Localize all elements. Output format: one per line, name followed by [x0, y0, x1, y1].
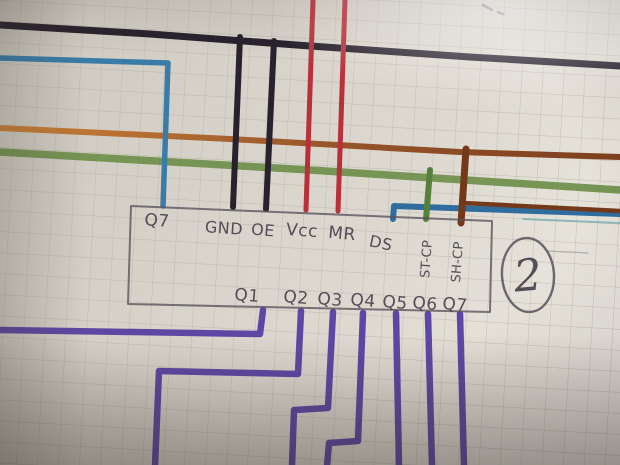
wire-st-cp-green	[426, 170, 430, 219]
wire-sh-cp-brown	[461, 149, 466, 223]
diagram-drawing	[0, 0, 620, 465]
wire-q5-purple	[396, 313, 399, 465]
diagram-scene: Q7 GND OE Vcc MR DS ST-CP SH-CP Q1 Q2 Q3…	[0, 0, 620, 465]
notebook-photo: Q7 GND OE Vcc MR DS ST-CP SH-CP Q1 Q2 Q3…	[0, 0, 620, 465]
wire-q6-purple	[428, 314, 432, 465]
wire-q7-bottom-purple	[460, 314, 464, 465]
